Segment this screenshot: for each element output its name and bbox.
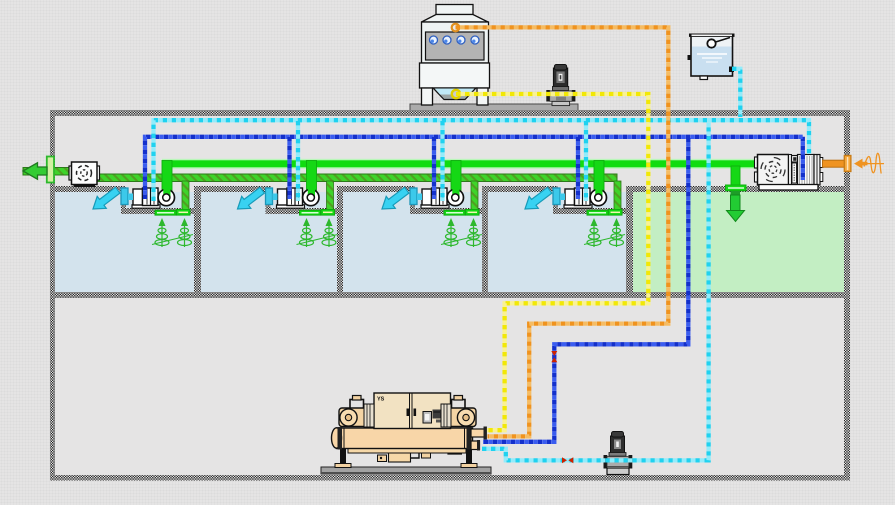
svg-text:YS: YS	[377, 397, 385, 403]
